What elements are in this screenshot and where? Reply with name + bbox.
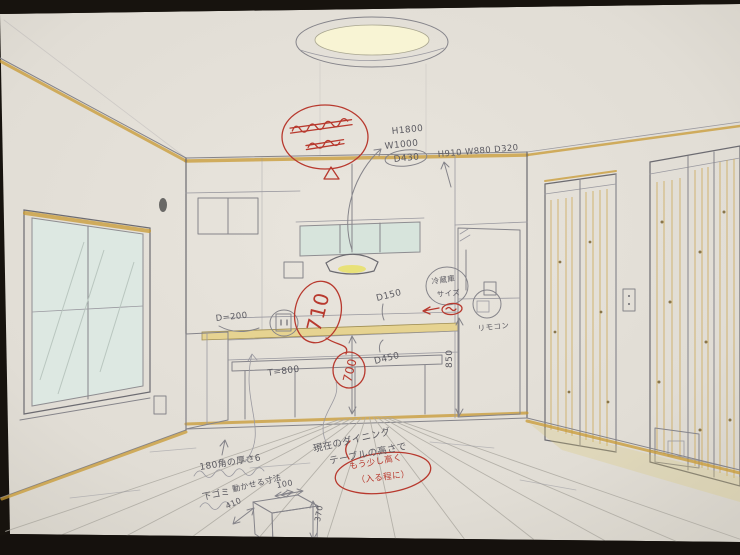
interior-sketch: H1800 W1000 D430 H910 W880 D320 冷蔵庫 サイズ … (0, 0, 740, 555)
fridge-label-2: サイズ (436, 287, 460, 299)
h850-label: 850 (445, 350, 455, 368)
lamp-glow (338, 265, 366, 273)
wall-intercom (159, 198, 167, 212)
sketch-photo: H1800 W1000 D430 H910 W880 D320 冷蔵庫 サイズ … (0, 0, 740, 555)
